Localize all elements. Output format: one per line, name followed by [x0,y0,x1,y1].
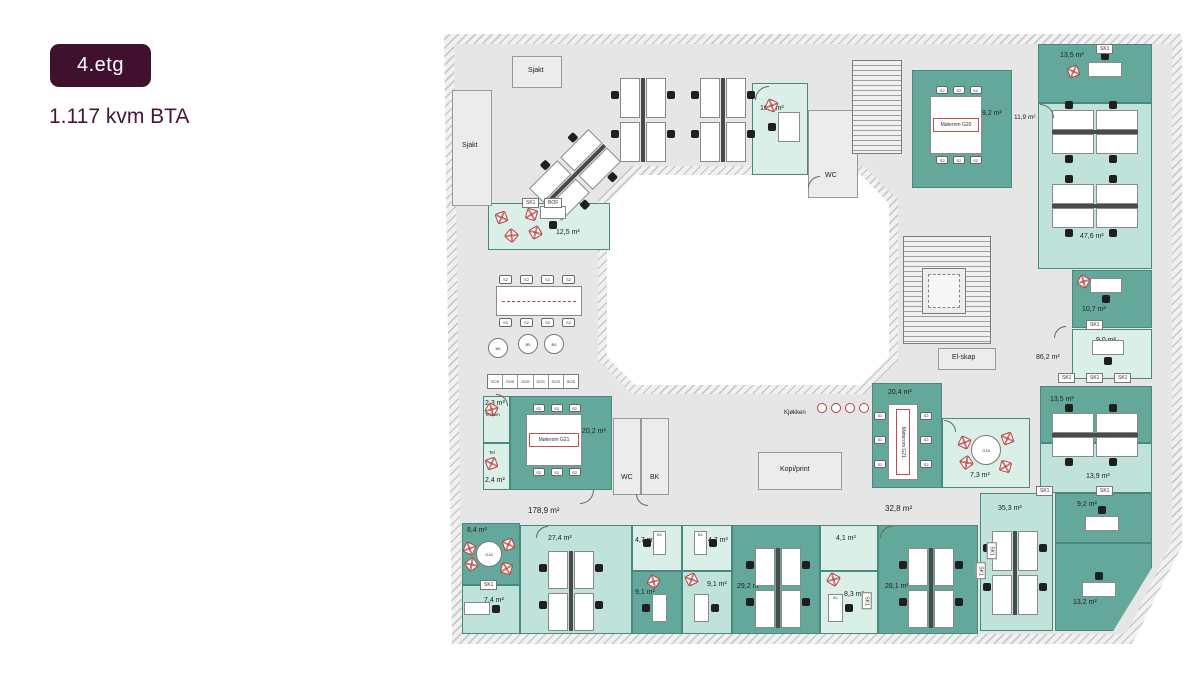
desk: B1 [694,531,707,555]
plan-label: 32,8 m² [885,504,912,513]
desk [1096,134,1138,154]
meeting-chair: S2 [920,436,932,444]
lounge-chair: B5 [544,334,564,354]
room-area-label: Kopi/print [780,466,810,473]
desk-cluster [1052,110,1138,154]
meeting-chair: S2 [970,86,982,94]
cabinet-label: SK1 [1096,44,1113,54]
cabinet-label: SK1 [1036,486,1053,496]
meeting-chair: S2 [569,404,581,412]
meeting-chair: S2 [541,318,554,327]
meeting-chair: S2 [936,86,948,94]
office-chair [955,561,963,569]
meeting-chair: S2 [874,436,886,444]
cabinet-label: SK1 [480,580,497,590]
sofa-seat: SOS [503,375,518,388]
room-4-7-b [682,525,732,571]
long-table-centerline [502,301,576,302]
office-chair [539,564,547,572]
desk [574,551,594,589]
desk-cluster [908,548,954,628]
desk [1096,208,1138,228]
desk [620,78,640,118]
office-chair [539,601,547,609]
office-chair [983,583,991,591]
meeting-chair: S2 [953,156,965,164]
desk-cluster [700,78,746,162]
meeting-chair: S2 [499,318,512,327]
meeting-chair: S2 [970,156,982,164]
office-chair [492,605,500,613]
desk [781,548,801,586]
stool [831,403,841,413]
stool [817,403,827,413]
office-chair [611,130,619,138]
room-area-label: 10,7 m² [1082,306,1106,313]
desk-divider [776,548,780,628]
room-area-label: 13,5 m² [1050,396,1074,403]
meeting-chair: S2 [874,460,886,468]
office-chair [1065,175,1073,183]
desk [1090,278,1122,293]
office-chair [899,598,907,606]
office-chair [845,604,853,612]
lounge-chair: B5 [518,334,538,354]
room-area-label: 47,6 m² [1080,233,1104,240]
meeting-table-label: Møterom G20 [933,118,979,132]
plan-label: Tel [489,450,495,455]
desk [548,593,568,631]
desk [646,78,666,118]
room-area-label: WC [621,474,633,481]
room-area-label: 20,2 m² [582,428,606,435]
desk [620,122,640,162]
office-chair [802,561,810,569]
desk [934,590,954,628]
cabinet-label: SK1 [976,562,986,579]
meeting-chair: S2 [562,275,575,284]
office-chair [711,604,719,612]
meeting-table-label: Møterom G21 [896,409,910,475]
desk-divider [1052,130,1138,134]
desk-divider [929,548,933,628]
sofa-seat: SOS [564,375,578,388]
office-chair [709,539,717,547]
cabinet-label: SK1 [1086,320,1103,330]
stool [859,403,869,413]
room-area-label: El-skap [952,354,975,361]
room-area-label: 9,1 m² [707,581,727,588]
office-chair [595,564,603,572]
desk-cluster [620,78,666,162]
room-area-label: 20,4 m² [888,389,912,396]
office-chair [1109,458,1117,466]
desk-cluster [1052,184,1138,228]
desk [464,602,490,615]
sofa-seat: SOS [518,375,533,388]
office-chair [1102,295,1110,303]
desk [574,593,594,631]
desk [694,594,709,622]
desk [726,122,746,162]
desk-cluster [1052,413,1138,457]
desk [726,78,746,118]
office-chair [643,539,651,547]
office-chair [611,91,619,99]
elevator-car [928,274,960,308]
office-chair [768,123,776,131]
room-area-label: 9,2 m² [1077,501,1097,508]
desk: B1 [653,531,666,555]
room-area-label: 13,2 m² [1073,599,1097,606]
meeting-chair: S2 [520,318,533,327]
desk-divider [721,78,725,162]
room-wc-mid [613,418,641,495]
sofa-seat: SOS [488,375,503,388]
desk-cluster [755,548,801,628]
meeting-chair: S2 [541,275,554,284]
floor-plan: 10,3 m²WC19,2 m²13,5 m²47,6 m²10,7 m²9,0… [440,26,1188,650]
office-chair [746,598,754,606]
meeting-chair: S2 [936,156,948,164]
meeting-chair: S2 [533,468,545,476]
desk [1096,184,1138,204]
cabinet-label: SK1 [862,592,872,609]
office-chair [549,221,557,229]
office-chair [691,91,699,99]
office-chair [747,91,755,99]
cabinet-label: SK1 [522,198,539,208]
desk [992,575,1012,615]
desk-divider [641,78,645,162]
meeting-chair: S2 [533,404,545,412]
office-chair [899,561,907,569]
desk [700,122,720,162]
cabinet-label: SK1 [1058,373,1075,383]
plan-label: 178,9 m² [528,506,560,515]
desk [908,548,928,586]
desk-divider [1013,531,1017,615]
desk [700,78,720,118]
desk [778,112,800,142]
desk [1088,62,1122,77]
room-area-label: BK [650,474,659,481]
room-area-label: 2,4 m² [485,477,505,484]
desk [1052,184,1094,204]
room-area-label: 13,9 m² [1086,473,1110,480]
desk [755,590,775,628]
desk [1018,531,1038,571]
desk [1096,110,1138,130]
round-table-g16: G16 [476,541,502,567]
sofa-seat: SOS [534,375,549,388]
office-chair [1109,175,1117,183]
desk-divider [1052,433,1138,437]
desk-cluster [548,551,594,631]
floor-area-text: 1.117 kvm BTA [49,105,189,129]
room-area-label: 13,5 m² [1060,52,1084,59]
office-chair [1065,155,1073,163]
room-area-label: 27,4 m² [548,535,572,542]
office-chair [1104,357,1112,365]
office-chair [1098,506,1106,514]
desk [1082,582,1116,597]
office-chair [1065,404,1073,412]
room-area-label: WC [825,172,837,179]
round-table-g15: G15 [971,435,1001,465]
office-chair [1039,544,1047,552]
desk [1052,437,1094,457]
office-chair [1109,404,1117,412]
meeting-chair: S2 [562,318,575,327]
top-stairs [852,60,902,154]
desk [1052,413,1094,433]
cabinet-label: BOF [544,198,562,208]
desk [908,590,928,628]
desk [1085,516,1119,531]
desk [1018,575,1038,615]
desk [1096,437,1138,457]
office-chair [667,130,675,138]
sofa-seat: SOS [549,375,564,388]
plan-label: 86,2 m² [1036,354,1060,361]
meeting-chair: S2 [920,412,932,420]
office-chair [802,598,810,606]
meeting-table-label: Møterom G21 [529,433,579,447]
desk [652,594,667,622]
cabinet-label: SK1 [1114,373,1131,383]
room-bk [641,418,669,495]
desk [1052,208,1094,228]
stool [845,403,855,413]
desk [755,548,775,586]
desk [646,122,666,162]
courtyard [607,175,889,385]
room-area-label: 12,5 m² [556,229,580,236]
office-chair [747,130,755,138]
office-chair [595,601,603,609]
office-chair [642,604,650,612]
room-area-label: Sjakt [462,142,478,149]
desk [1052,134,1094,154]
lounge-chair: B5 [488,338,508,358]
desk [548,551,568,589]
meeting-chair: S2 [499,275,512,284]
office-chair [1109,101,1117,109]
meeting-chair: S2 [569,468,581,476]
office-chair [1109,229,1117,237]
office-chair [667,91,675,99]
room-area-label: 7,3 m² [970,472,990,479]
desk [1052,110,1094,130]
desk-cluster [992,531,1038,615]
meeting-chair: S2 [551,468,563,476]
plan-label: 11,9 m² [1014,114,1036,121]
sofa-row: SOSSOSSOSSOSSOSSOS [487,374,579,389]
meeting-chair: S2 [920,460,932,468]
desk [934,548,954,586]
office-chair [1095,572,1103,580]
room-area-label: 35,3 m² [998,505,1022,512]
office-chair [746,561,754,569]
cabinet-label: SK1 [1096,486,1113,496]
office-chair [1065,458,1073,466]
meeting-chair: S2 [551,404,563,412]
cabinet-label: SK1 [987,542,997,559]
office-chair [691,130,699,138]
office-chair [955,598,963,606]
cabinet-label: SK1 [1086,373,1103,383]
room-area-label: 8,4 m² [467,527,487,534]
desk-divider [1052,204,1138,208]
desk [1092,340,1124,355]
office-chair [1065,101,1073,109]
plan-label: Kjøkken [784,410,806,416]
room-area-label: Sjakt [528,67,544,74]
floor-badge: 4.etg [50,44,151,87]
office-chair [1109,155,1117,163]
desk: B1 [828,594,843,622]
room-area-label: 28,1 m² [885,583,909,590]
office-chair [1039,583,1047,591]
room-area-label: 4,1 m² [836,535,856,542]
plan-label: Tel rom [485,412,500,417]
meeting-chair: S2 [520,275,533,284]
desk [781,590,801,628]
office-chair [1065,229,1073,237]
desk [1096,413,1138,433]
meeting-chair: S2 [874,412,886,420]
meeting-chair: S2 [953,86,965,94]
desk-divider [569,551,573,631]
room-4-1 [820,525,878,571]
